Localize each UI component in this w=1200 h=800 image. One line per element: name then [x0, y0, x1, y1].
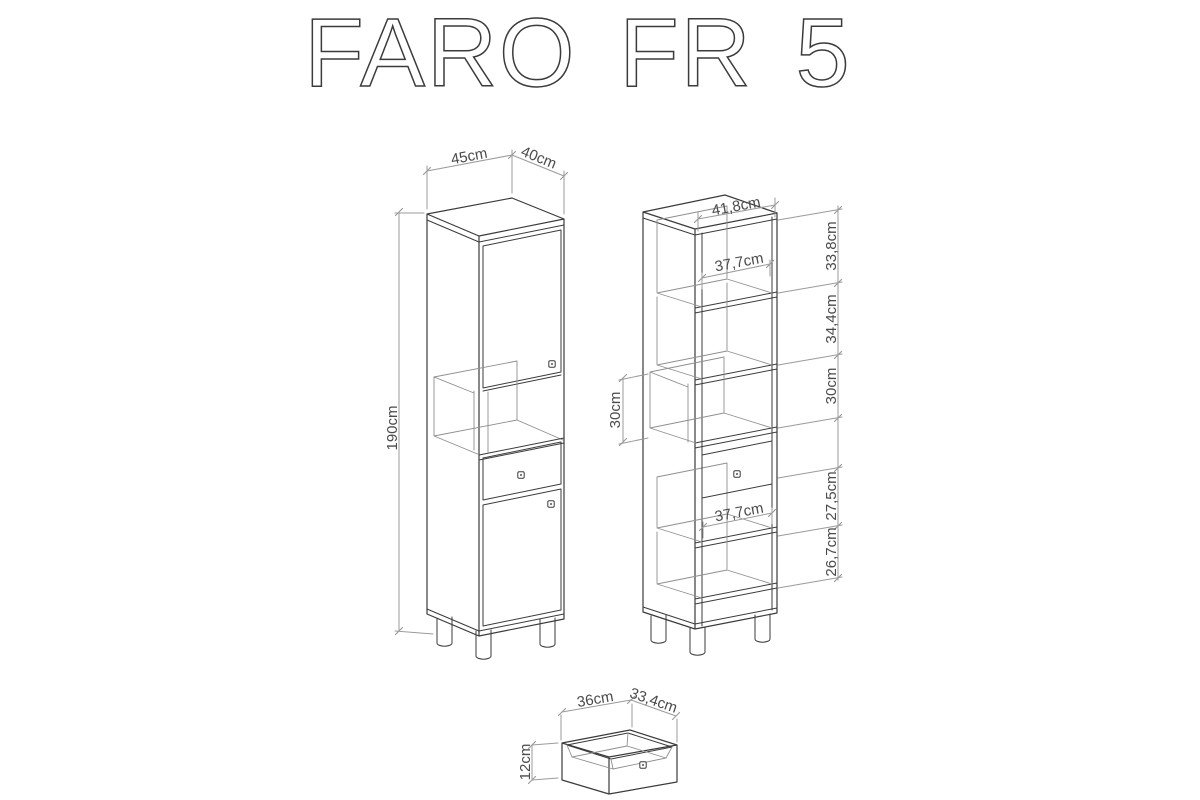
- upper-door-knob: [549, 361, 555, 367]
- dim-section-heights: 33,8cm 34,4cm 30cm 27,5cm 26,7cm: [778, 206, 842, 588]
- drawer-outline: [562, 730, 677, 794]
- knob-dot-icon: [736, 473, 738, 475]
- knob-dot-icon: [551, 363, 553, 365]
- dim-label-inner-width: 41,8cm: [710, 194, 761, 220]
- dim-extension-lines: [532, 743, 558, 780]
- lower-door: [483, 489, 561, 626]
- dim-label-drawer-width: 36cm: [576, 688, 615, 711]
- open-cabinet-view: 41,8cm 37,7cm 37,7cm 30cm 33,8cm: [607, 194, 842, 655]
- closed-cabinet-outline: [427, 198, 564, 636]
- furniture-technical-drawing: FARO FR 5: [0, 0, 1200, 800]
- dim-label-section-3: 30cm: [823, 368, 840, 405]
- open-cabinet-drawer-knob: [734, 471, 740, 477]
- dim-label-drawer-depth: 33,4cm: [627, 685, 679, 717]
- drawer-knob: [640, 762, 646, 768]
- lower-door-knob: [548, 501, 554, 507]
- dim-label-section-1: 33,8cm: [823, 221, 840, 270]
- dim-inner-width: 41,8cm: [695, 194, 779, 231]
- dim-label-depth: 40cm: [518, 143, 558, 173]
- dim-upper-shelf-width: 37,7cm: [699, 250, 774, 289]
- dim-label-upper-shelf-width: 37,7cm: [713, 250, 764, 276]
- dim-closed-height: 190cm: [384, 209, 433, 635]
- dim-label-section-5: 26,7cm: [823, 527, 840, 576]
- open-cabinet-drawer-front: [702, 441, 772, 498]
- dim-closed-depth: 40cm: [512, 143, 568, 214]
- technical-drawing-page: FARO FR 5: [0, 0, 1200, 800]
- closed-cabinet-view: 45cm 40cm 190cm: [384, 143, 568, 659]
- dim-label-lower-shelf-width: 37,7cm: [713, 500, 764, 526]
- dim-label-height: 190cm: [384, 405, 401, 450]
- open-cabinet-panel-edges: [643, 217, 777, 626]
- knob-dot-icon: [550, 503, 552, 505]
- dim-lower-shelf-width: 37,7cm: [700, 500, 776, 538]
- dim-niche-height: 30cm: [607, 374, 648, 446]
- dim-label-niche-height: 30cm: [607, 392, 624, 429]
- closed-cabinet-panel-edges: [427, 220, 564, 631]
- dim-drawer-height: 12cm: [517, 742, 558, 784]
- dim-drawer-width: 36cm: [559, 688, 635, 740]
- dim-label-width: 45cm: [450, 145, 489, 168]
- drawer-detail-view: 36cm 33,4cm 12cm: [517, 685, 680, 794]
- knob-dot-icon: [520, 474, 522, 476]
- closed-cabinet-drawer-knob: [518, 472, 524, 478]
- knob-dot-icon: [642, 764, 644, 766]
- dim-label-section-4: 27,5cm: [823, 471, 840, 520]
- dim-label-section-2: 34,4cm: [823, 294, 840, 343]
- page-title: FARO FR 5: [304, 0, 851, 107]
- dim-label-drawer-height: 12cm: [517, 744, 534, 781]
- dim-drawer-depth: 33,4cm: [627, 685, 679, 742]
